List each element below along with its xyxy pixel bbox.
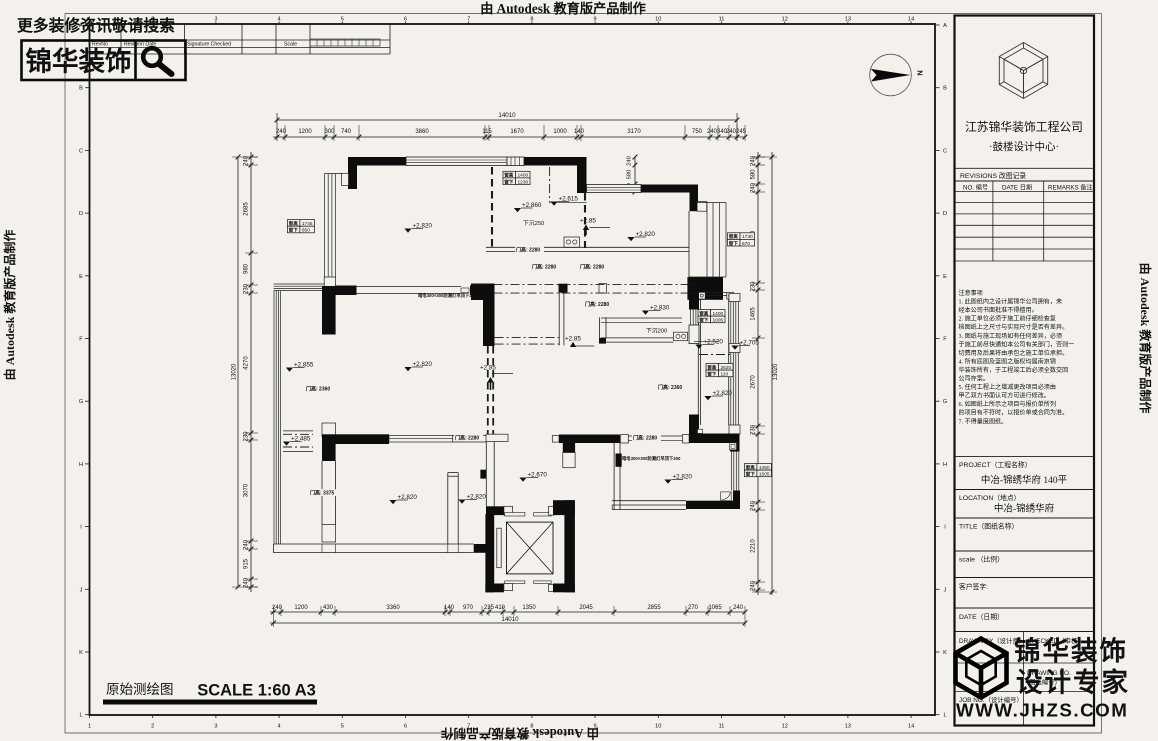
svg-text:WWW.JHZS.COM: WWW.JHZS.COM xyxy=(956,700,1128,721)
svg-text:3: 3 xyxy=(214,724,217,730)
svg-text:14010: 14010 xyxy=(501,616,519,623)
svg-text:14: 14 xyxy=(908,724,914,730)
svg-text:DATE 日期: DATE 日期 xyxy=(1002,184,1032,192)
svg-text:240: 240 xyxy=(627,156,633,166)
svg-text:中冶-锦绣华府: 中冶-锦绣华府 xyxy=(994,503,1055,515)
svg-text:1200: 1200 xyxy=(294,605,308,611)
svg-text:切费用及后果将由承包之施工单位承担。: 切费用及后果将由承包之施工单位承担。 xyxy=(959,349,1069,357)
svg-text:1670: 1670 xyxy=(510,129,524,135)
svg-text:NO. 编号: NO. 编号 xyxy=(963,184,988,192)
svg-text:1. 此图纸内之设计属锦华公司拥有，未: 1. 此图纸内之设计属锦华公司拥有，未 xyxy=(959,298,1063,306)
svg-text:H: H xyxy=(943,462,947,468)
svg-text:580: 580 xyxy=(751,169,757,180)
svg-text:G: G xyxy=(79,399,83,405)
svg-text:240: 240 xyxy=(244,539,250,550)
svg-text:+2.85: +2.85 xyxy=(580,218,596,225)
svg-text:740: 740 xyxy=(341,129,352,135)
svg-text:1505: 1505 xyxy=(759,472,770,478)
svg-text:+2.820: +2.820 xyxy=(467,493,487,500)
svg-text:300: 300 xyxy=(324,129,335,135)
svg-text:G: G xyxy=(943,399,947,405)
svg-text:11: 11 xyxy=(719,724,725,730)
svg-text:D: D xyxy=(943,211,947,217)
svg-text:1065: 1065 xyxy=(708,605,722,611)
svg-text:2045: 2045 xyxy=(579,605,593,611)
svg-text:客户签字:: 客户签字: xyxy=(959,582,988,591)
svg-text:3070: 3070 xyxy=(244,483,250,497)
svg-text:3360: 3360 xyxy=(386,605,400,611)
svg-text:980: 980 xyxy=(244,263,250,274)
svg-text:注意事项: 注意事项 xyxy=(959,289,983,297)
svg-text:14010: 14010 xyxy=(498,112,516,119)
svg-text:1200: 1200 xyxy=(298,129,312,135)
svg-text:4. 所有底图及蓝图之版权均属南京锦: 4. 所有底图及蓝图之版权均属南京锦 xyxy=(959,357,1057,365)
svg-text:窗下: 窗下 xyxy=(707,371,717,378)
svg-text:Scale: Scale xyxy=(284,42,297,48)
svg-text:13: 13 xyxy=(845,724,851,730)
svg-text:2: 2 xyxy=(151,724,154,730)
svg-text:5. 任何工程上之增减更改项目必须由: 5. 任何工程上之增减更改项目必须由 xyxy=(959,383,1057,391)
svg-text:670: 670 xyxy=(742,241,750,247)
svg-text:+2.820: +2.820 xyxy=(413,222,433,229)
svg-text:1465: 1465 xyxy=(751,307,757,321)
svg-text:门高: 2280: 门高: 2280 xyxy=(580,264,604,271)
svg-text:暗电300×300防潮灯吊顶下300: 暗电300×300防潮灯吊顶下300 xyxy=(418,292,477,299)
svg-text:4: 4 xyxy=(278,724,281,730)
svg-text:窗下: 窗下 xyxy=(289,227,299,234)
svg-text:门高: 2360: 门高: 2360 xyxy=(306,386,330,393)
svg-text:3860: 3860 xyxy=(415,129,429,135)
svg-text:K: K xyxy=(79,650,83,656)
svg-text:240: 240 xyxy=(751,500,757,511)
svg-text:经本公司书面批准不得擅用。: 经本公司书面批准不得擅用。 xyxy=(959,306,1038,314)
svg-text:115: 115 xyxy=(482,129,492,135)
svg-text:+2.820: +2.820 xyxy=(636,231,656,238)
svg-text:1230: 1230 xyxy=(518,179,529,185)
svg-text:3. 图纸与施工现场如有任何差异，必须: 3. 图纸与施工现场如有任何差异，必须 xyxy=(959,332,1063,340)
svg-text:SCALE 1:60 A3: SCALE 1:60 A3 xyxy=(197,682,316,700)
svg-text:+2.820: +2.820 xyxy=(398,494,418,501)
svg-text:6: 6 xyxy=(404,724,407,730)
svg-text:5: 5 xyxy=(341,724,344,730)
svg-text:窗下: 窗下 xyxy=(729,240,739,247)
svg-text:由 Autodesk 教育版产品制作: 由 Autodesk 教育版产品制作 xyxy=(1138,263,1153,414)
svg-text:10: 10 xyxy=(655,724,661,730)
svg-text:2. 施工单位必须于施工前仔细检查复: 2. 施工单位必须于施工前仔细检查复 xyxy=(959,315,1057,323)
svg-text:410: 410 xyxy=(495,605,506,611)
svg-text:门高: 2280: 门高: 2280 xyxy=(633,435,657,442)
svg-text:2670: 2670 xyxy=(751,375,757,389)
svg-text:门高: 2280: 门高: 2280 xyxy=(516,246,540,253)
svg-text:由 Autodesk 教育版产品制作: 由 Autodesk 教育版产品制作 xyxy=(480,0,646,16)
svg-text:下沉250: 下沉250 xyxy=(523,219,544,227)
svg-text:1005: 1005 xyxy=(713,318,724,324)
svg-text:+2.820: +2.820 xyxy=(713,390,733,397)
svg-text:H: H xyxy=(79,462,83,468)
svg-text:+2.85: +2.85 xyxy=(565,336,581,343)
svg-text:6. 如图纸上所示之项目与报价单所列: 6. 如图纸上所示之项目与报价单所列 xyxy=(959,400,1057,408)
svg-text:+2.855: +2.855 xyxy=(294,361,314,368)
svg-text:1350: 1350 xyxy=(522,605,536,611)
svg-text:华装饰所有，于工程竣工后必须全数交回: 华装饰所有，于工程竣工后必须全数交回 xyxy=(959,366,1069,374)
svg-text:核图纸上之尺寸与实际尺寸是否有差异。: 核图纸上之尺寸与实际尺寸是否有差异。 xyxy=(959,323,1069,331)
svg-text:锦华装饰: 锦华装饰 xyxy=(1014,636,1128,666)
svg-text:的项目有不符时，以报价单或合同为准。: 的项目有不符时，以报价单或合同为准。 xyxy=(959,409,1069,417)
svg-text:门高: 3375: 门高: 3375 xyxy=(310,490,334,497)
svg-text:更多装修资讯敬请搜索: 更多装修资讯敬请搜索 xyxy=(17,16,175,35)
svg-text:+2.830: +2.830 xyxy=(650,304,670,311)
svg-text:+2.820: +2.820 xyxy=(673,473,693,480)
svg-text:110: 110 xyxy=(721,372,729,378)
svg-text:F: F xyxy=(943,337,947,343)
svg-text:13020: 13020 xyxy=(232,363,238,380)
svg-text:窗下: 窗下 xyxy=(504,178,514,185)
svg-text:REMARKS 备注: REMARKS 备注 xyxy=(1048,184,1093,192)
svg-text:B: B xyxy=(943,86,947,92)
svg-text:13020: 13020 xyxy=(773,363,779,380)
svg-text:650: 650 xyxy=(302,228,310,234)
svg-text:由 Autodesk 教育版产品制作: 由 Autodesk 教育版产品制作 xyxy=(441,726,600,741)
svg-text:窗下: 窗下 xyxy=(699,317,709,324)
svg-text:甲乙双方书面认可方可进行修改。: 甲乙双方书面认可方可进行修改。 xyxy=(959,392,1050,400)
svg-text:750: 750 xyxy=(692,129,703,135)
svg-text:270: 270 xyxy=(688,605,699,611)
svg-text:原始测绘图: 原始测绘图 xyxy=(106,682,174,697)
svg-text:窗下: 窗下 xyxy=(746,471,756,478)
svg-text:门高: 2280: 门高: 2280 xyxy=(585,301,609,308)
svg-text:J: J xyxy=(80,587,83,593)
svg-text:锦华装饰: 锦华装饰 xyxy=(26,47,132,77)
svg-text:C: C xyxy=(943,148,947,154)
svg-text:230: 230 xyxy=(244,431,250,442)
svg-text:K: K xyxy=(943,650,947,656)
svg-text:+2.520: +2.520 xyxy=(704,338,724,345)
svg-text:+2.85: +2.85 xyxy=(480,365,496,372)
svg-text:暗电300×300防潮灯吊顶下300: 暗电300×300防潮灯吊顶下300 xyxy=(622,455,681,462)
svg-text:2210: 2210 xyxy=(751,539,757,553)
svg-text:PROJECT（工程名称）: PROJECT（工程名称） xyxy=(959,460,1032,469)
svg-text:门高: 2280: 门高: 2280 xyxy=(532,264,556,271)
svg-text:公司存案。: 公司存案。 xyxy=(959,375,989,383)
svg-text:+2.705: +2.705 xyxy=(740,339,760,346)
svg-text:140: 140 xyxy=(444,605,455,611)
svg-text:B: B xyxy=(79,86,83,92)
svg-text:LOCATION（地点）: LOCATION（地点） xyxy=(959,493,1020,502)
svg-text:+2.670: +2.670 xyxy=(528,471,548,478)
svg-text:2685: 2685 xyxy=(244,202,250,216)
svg-text:1000: 1000 xyxy=(553,129,567,135)
svg-text:C: C xyxy=(79,148,83,154)
svg-text:·鼓楼设计中心·: ·鼓楼设计中心· xyxy=(989,140,1059,153)
svg-text:门高: 2360: 门高: 2360 xyxy=(658,384,682,391)
svg-text:4270: 4270 xyxy=(244,356,250,370)
svg-text:E: E xyxy=(79,274,83,280)
svg-text:230: 230 xyxy=(751,281,757,292)
svg-text:L: L xyxy=(943,713,946,719)
svg-text:240: 240 xyxy=(751,580,757,591)
svg-text:+2.860: +2.860 xyxy=(522,202,542,209)
svg-text:N: N xyxy=(916,70,925,75)
svg-text:江苏锦华装饰工程公司: 江苏锦华装饰工程公司 xyxy=(965,120,1083,134)
svg-text:设计专家: 设计专家 xyxy=(1016,668,1130,698)
svg-text:REVISIONS 改图记录: REVISIONS 改图记录 xyxy=(960,171,1026,180)
svg-text:DATE（日期）: DATE（日期） xyxy=(959,613,1004,621)
svg-text:+2.485: +2.485 xyxy=(291,435,311,442)
svg-text:+2.615: +2.615 xyxy=(559,195,579,202)
svg-text:1: 1 xyxy=(88,724,91,730)
svg-text:235: 235 xyxy=(484,605,495,611)
svg-text:12: 12 xyxy=(782,724,788,730)
svg-text:E: E xyxy=(943,274,947,280)
svg-text:L: L xyxy=(79,713,82,719)
svg-text:门高: 2280: 门高: 2280 xyxy=(455,435,479,442)
svg-text:TITLE（图纸名称）: TITLE（图纸名称） xyxy=(959,522,1018,531)
svg-text:230: 230 xyxy=(751,424,757,435)
svg-text:970: 970 xyxy=(463,605,474,611)
svg-text:scale （比例）: scale （比例） xyxy=(959,555,1004,564)
svg-text:Signature Checked: Signature Checked xyxy=(187,42,231,48)
svg-text:由 Autodesk 教育版产品制作: 由 Autodesk 教育版产品制作 xyxy=(2,230,17,381)
svg-text:230: 230 xyxy=(244,283,250,294)
svg-text:240: 240 xyxy=(244,577,250,588)
svg-text:下沉200: 下沉200 xyxy=(646,327,667,335)
svg-text:915: 915 xyxy=(244,558,250,569)
svg-text:140: 140 xyxy=(574,129,585,135)
svg-text:430: 430 xyxy=(323,605,334,611)
svg-text:于施工前尽快通知本公司有关部门，否则一: 于施工前尽快通知本公司有关部门，否则一 xyxy=(959,340,1075,348)
svg-text:240: 240 xyxy=(751,182,757,193)
svg-text:A: A xyxy=(943,23,947,29)
svg-text:240: 240 xyxy=(733,605,744,611)
svg-text:+2.820: +2.820 xyxy=(413,361,433,368)
svg-text:中冶-锦绣华府 140平: 中冶-锦绣华府 140平 xyxy=(981,474,1068,486)
svg-text:D: D xyxy=(79,211,83,217)
svg-text:F: F xyxy=(79,337,83,343)
svg-text:7. 不得量度图纸。: 7. 不得量度图纸。 xyxy=(959,417,1008,425)
svg-text:J: J xyxy=(944,587,947,593)
svg-text:3170: 3170 xyxy=(627,129,641,135)
svg-text:2855: 2855 xyxy=(647,605,661,611)
svg-text:580: 580 xyxy=(627,170,633,180)
